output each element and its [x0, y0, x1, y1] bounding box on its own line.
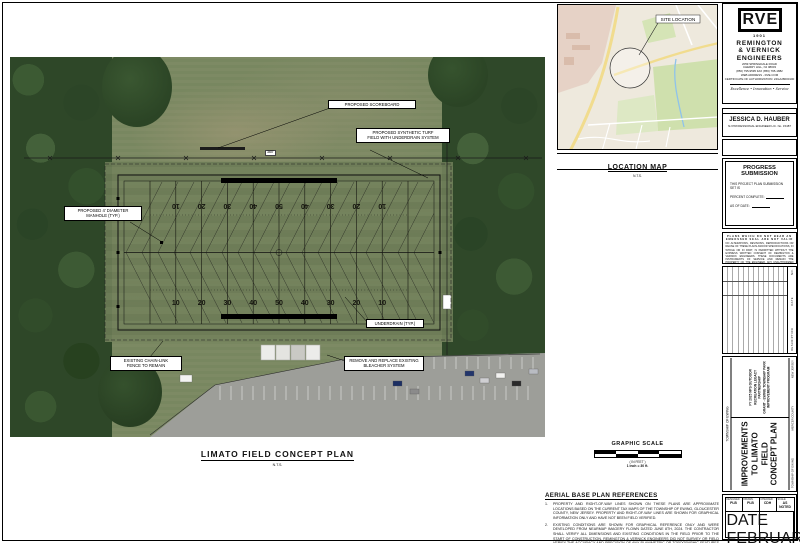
sheet-info-block: DESIGNEDPLB DRAWNPLB CHECKEDCDH SCALEAS … [722, 494, 797, 540]
revision-labels: NO. DATE DESCRIPTION [787, 267, 796, 353]
grant-program: FY 2025 NPS OUTDOOR RECREATION LEGACY PA… [731, 358, 788, 417]
svg-text:30: 30 [224, 300, 232, 307]
progress-line-3: AS OF DATE: [730, 204, 789, 208]
yard-numbers-bottom: 102030405040302010 [172, 300, 386, 307]
limit-of-disturbance [105, 164, 451, 340]
sideline-bar-top [221, 178, 337, 183]
reference-note: 1. PROPERTY AND RIGHT-OF-WAY LINES SHOWN… [545, 502, 719, 521]
project-title-block: TOWNSHIP OF EWING IMPROVEMENTS TO LIMATO… [722, 356, 797, 492]
state: NEW JERSEY [790, 360, 794, 378]
scale-bar [594, 450, 682, 458]
engineer-name: JESSICA D. HAUBER [723, 117, 796, 123]
signature-box [722, 139, 797, 156]
graphic-scale: GRAPHIC SCALE ( IN FEET ) 1 inch = 30 ft… [557, 441, 718, 468]
progress-inner: PROGRESS SUBMISSION THIS PROJECT PLAN SU… [725, 161, 794, 226]
client-name: TOWNSHIP OF EWING [724, 358, 731, 490]
progress-line-2: PERCENT COMPLETE: [730, 195, 789, 199]
seal-warning: PLANS WHICH DO NOT BEAR AN EMBOSSED SEAL… [726, 235, 794, 241]
location-map-svg: SITE LOCATION [558, 5, 718, 150]
references-heading: AERIAL BASE PLAN REFERENCES [545, 492, 658, 500]
drawn-cell: DRAWNPLB [743, 498, 760, 512]
svg-text:10: 10 [378, 300, 386, 307]
plan-title: LIMATO FIELD CONCEPT PLAN [201, 449, 354, 461]
rev-col-date: DATE [791, 297, 794, 306]
revision-table: NO. DATE DESCRIPTION [722, 266, 797, 354]
progress-title: PROGRESS SUBMISSION [730, 165, 789, 177]
svg-text:20: 20 [353, 300, 361, 307]
svg-text:50: 50 [275, 300, 283, 307]
svg-text:40: 40 [301, 300, 309, 307]
rev-col-description: DESCRIPTION [791, 328, 794, 351]
project-title-rotated: TOWNSHIP OF EWING IMPROVEMENTS TO LIMATO… [724, 358, 795, 490]
location-map-caption: LOCATION MAP N.T.S. [557, 153, 718, 170]
svg-text:30: 30 [327, 300, 335, 307]
svg-text:20: 20 [352, 202, 360, 209]
firm-tagline: Excellence • Innovation • Service [723, 87, 796, 91]
rve-logo-year: 1901 [723, 33, 796, 38]
engineer-license: NJ PROFESSIONAL ENGINEER LIC. No. 15487 [723, 124, 796, 128]
note-number: 1. [545, 502, 553, 521]
svg-text:40: 40 [249, 300, 257, 307]
callout-bleacher: REMOVE AND REPLACE EXISTING BLEACHER SYS… [344, 356, 424, 371]
revision-grid [723, 267, 787, 353]
date-cell: DATEFEBRUARY 2025 [726, 512, 760, 543]
svg-text:40: 40 [301, 202, 309, 209]
project-title: IMPROVEMENTS TO LIMATO FIELD CONCEPT PLA… [731, 417, 788, 490]
location-map: SITE LOCATION [557, 4, 718, 150]
as-of-date-blank [752, 204, 770, 208]
reference-note: 2. EXISTING CONDITIONS ARE SHOWN FOR GRA… [545, 523, 719, 543]
svg-text:10: 10 [378, 202, 386, 209]
yard-numbers-top: 102030405040302010 [172, 202, 386, 209]
graphic-scale-ratio: 1 inch = 30 ft. [557, 464, 718, 468]
svg-text:10: 10 [172, 202, 180, 209]
divider [730, 84, 790, 85]
scoreboard-mark [200, 147, 245, 150]
firm-name-1: REMINGTON [723, 40, 796, 47]
note-text: EXISTING CONDITIONS ARE SHOWN FOR GRAPHI… [553, 523, 719, 543]
graphic-scale-title: GRAPHIC SCALE [557, 441, 718, 447]
firm-cert: CERTIFICATE OF AUTHORIZATION: 24GA280001… [723, 78, 796, 82]
county: MERCER COUNTY [790, 406, 794, 431]
plan-scale-note: N.T.S. [10, 463, 545, 467]
callout-turf: PROPOSED SYNTHETIC TURF FIELD WITH UNDER… [356, 128, 450, 143]
progress-line-1: THIS PROJECT PLAN SUBMISSION SET IS [730, 182, 789, 190]
svg-text:40: 40 [249, 202, 257, 209]
svg-text:10: 10 [172, 300, 180, 307]
location-map-title: LOCATION MAP [608, 164, 668, 172]
scale-cell: SCALEAS NOTED [777, 498, 794, 512]
callout-fence: EXISTING CHAIN-LINK FENCE TO REMAIN [110, 356, 182, 371]
firm-name-2: & VERNICK [723, 47, 796, 54]
callout-manhole: PROPOSED 4' DIAMETER MANHOLE (TYP.) [64, 206, 142, 221]
firm-block: RVE 1901 REMINGTON & VERNICK ENGINEERS 2… [722, 3, 797, 104]
seal-note-block: PLANS WHICH DO NOT BEAR AN EMBOSSED SEAL… [722, 232, 797, 264]
progress-submission-block: PROGRESS SUBMISSION THIS PROJECT PLAN SU… [722, 158, 797, 229]
aerial-photo: 102030405040302010 102030405040302010 [10, 57, 545, 437]
seal-body-text: NO ALTERATIONS, REVISIONS, REPRODUCTIONS… [726, 242, 794, 264]
dimension-label-top: 360' [265, 150, 276, 156]
svg-text:20: 20 [198, 202, 206, 209]
svg-text:20: 20 [198, 300, 206, 307]
field-overlay-svg: 102030405040302010 102030405040302010 [10, 57, 545, 437]
callout-scoreboard: PROPOSED SCOREBOARD [328, 100, 416, 109]
svg-text:30: 30 [223, 202, 231, 209]
plan-caption: LIMATO FIELD CONCEPT PLAN N.T.S. [10, 444, 545, 467]
municipality: TOWNSHIP OF EWING [790, 458, 794, 488]
rev-col-no: NO. [791, 269, 794, 275]
site-location-label: SITE LOCATION [661, 17, 696, 22]
designed-cell: DESIGNEDPLB [726, 498, 743, 512]
bleachers [261, 345, 320, 360]
signature-strip [723, 109, 796, 114]
engineer-block: JESSICA D. HAUBER NJ PROFESSIONAL ENGINE… [722, 108, 797, 137]
svg-text:30: 30 [327, 202, 335, 209]
callout-underdrain: UNDERDRAIN (TYP.) [366, 319, 424, 328]
sideline-bar-bottom [221, 314, 337, 319]
aerial-references: AERIAL BASE PLAN REFERENCES 1. PROPERTY … [545, 484, 719, 543]
drawing-sheet: 102030405040302010 102030405040302010 [0, 0, 800, 543]
note-number: 2. [545, 523, 553, 543]
percent-complete-blank [766, 195, 784, 199]
sheet-number-cell: SHEET No.1 of 1 [760, 512, 794, 543]
svg-text:50: 50 [275, 202, 283, 209]
project-location-row: TOWNSHIP OF EWING MERCER COUNTY NEW JERS… [788, 358, 795, 490]
note-text: PROPERTY AND RIGHT-OF-WAY LINES SHOWN ON… [553, 502, 719, 521]
location-map-scale: N.T.S. [557, 174, 718, 178]
checked-cell: CHECKEDCDH [760, 498, 777, 512]
rve-logo: RVE [738, 8, 782, 32]
